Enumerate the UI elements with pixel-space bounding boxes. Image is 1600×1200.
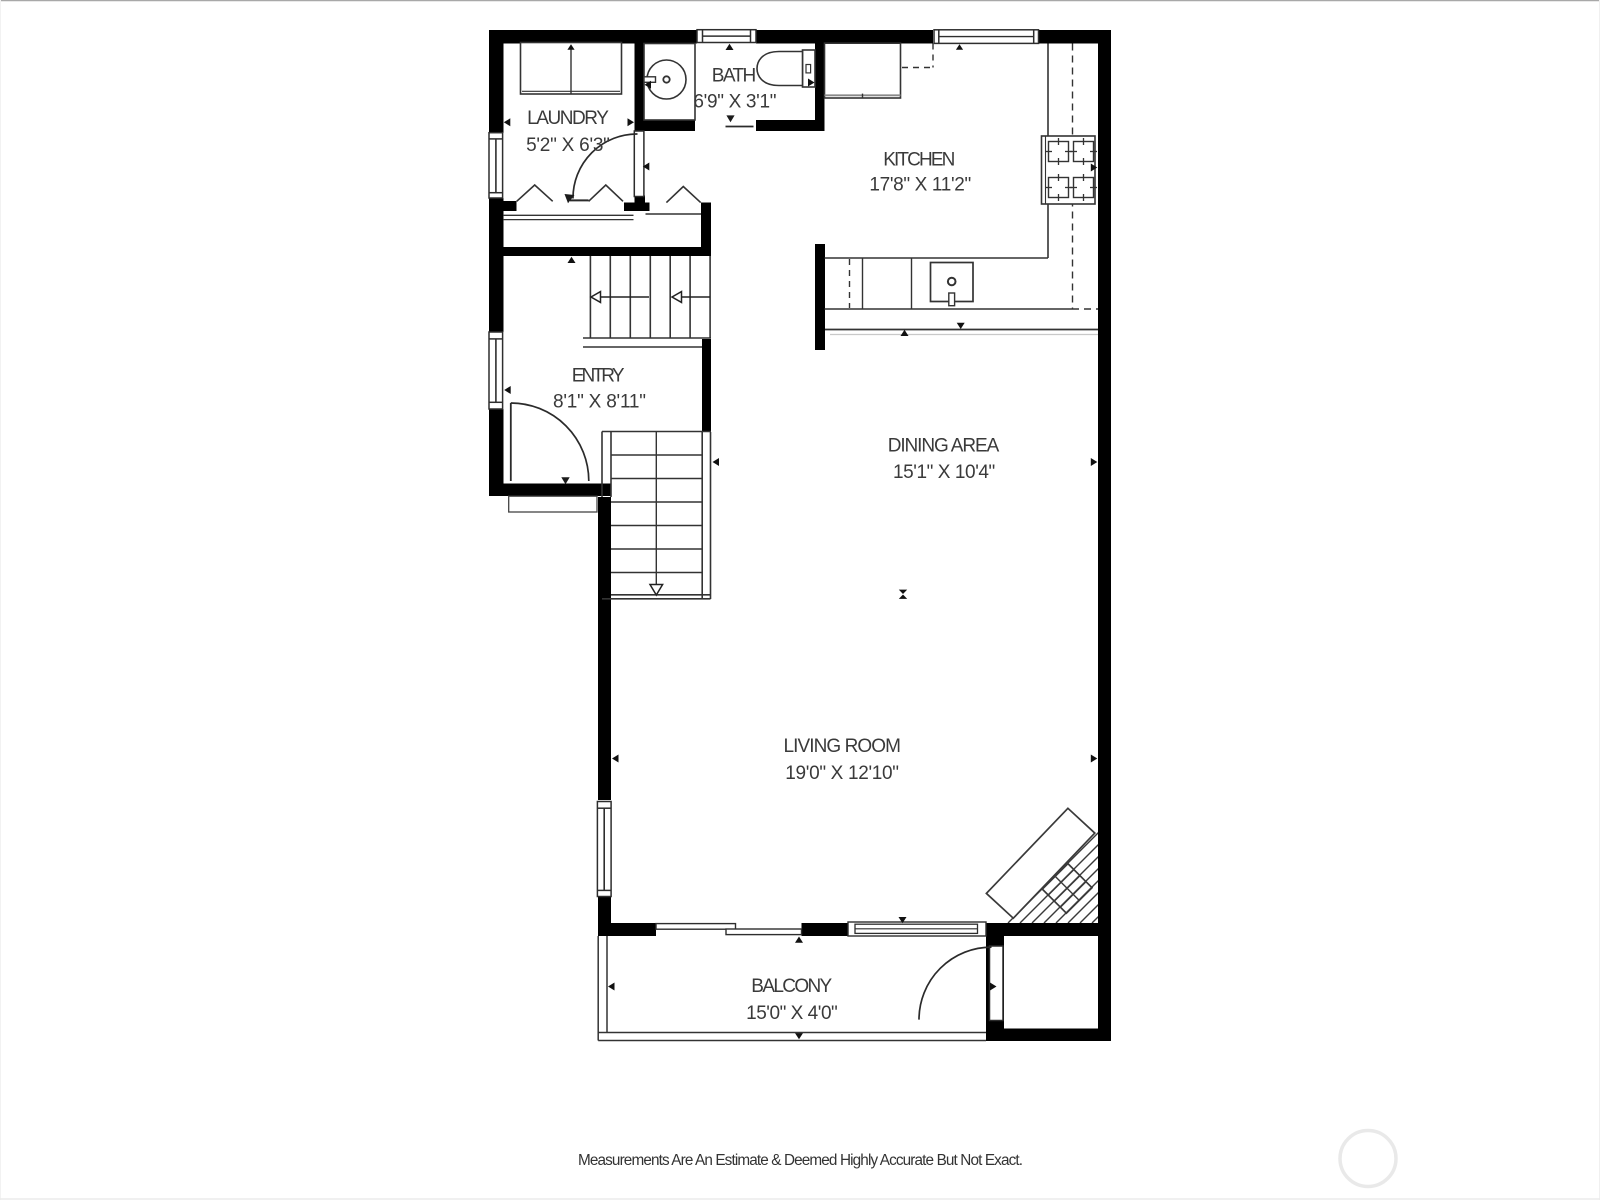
svg-text:6'9" X 3'1": 6'9" X 3'1" — [693, 92, 776, 113]
svg-text:DINING AREA: DINING AREA — [888, 436, 1000, 457]
svg-text:5'2" X 6'3": 5'2" X 6'3" — [526, 135, 610, 156]
svg-text:8'1" X 8'11": 8'1" X 8'11" — [553, 392, 646, 413]
svg-text:17'8" X 11'2": 17'8" X 11'2" — [869, 175, 971, 196]
svg-text:LIVING ROOM: LIVING ROOM — [784, 736, 901, 757]
svg-text:KITCHEN: KITCHEN — [883, 150, 955, 171]
svg-text:15'1" X 10'4": 15'1" X 10'4" — [893, 462, 995, 483]
svg-text:LAUNDRY: LAUNDRY — [527, 108, 609, 129]
svg-text:15'0" X 4'0": 15'0" X 4'0" — [746, 1003, 838, 1024]
svg-text:19'0" X 12'10": 19'0" X 12'10" — [785, 763, 899, 784]
svg-text:Measurements Are An Estimate &: Measurements Are An Estimate & Deemed Hi… — [578, 1152, 1023, 1169]
svg-text:BATH: BATH — [712, 66, 756, 87]
svg-text:ENTRY: ENTRY — [572, 366, 625, 387]
svg-text:BALCONY: BALCONY — [751, 976, 832, 997]
